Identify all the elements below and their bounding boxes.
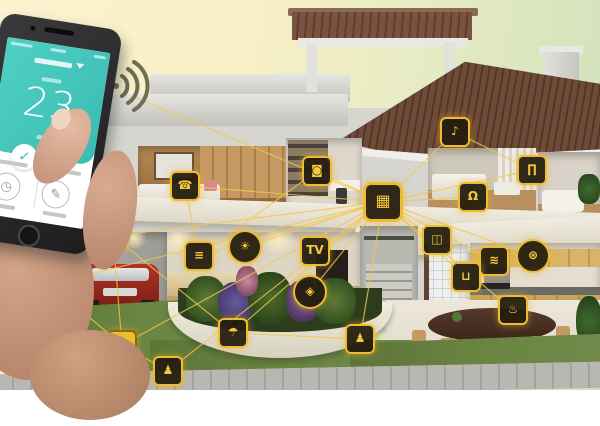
- room-selector-label[interactable]: [34, 57, 72, 68]
- chevron-down-icon[interactable]: [76, 63, 85, 69]
- button-label-bar: [42, 211, 66, 219]
- edit-pencil-icon: ✎: [49, 186, 62, 203]
- table-plant: [452, 312, 462, 322]
- scene-timer-icon: ◷: [0, 178, 13, 195]
- device-hub-icon[interactable]: ▦: [363, 182, 403, 222]
- device-washer-icon[interactable]: ◙: [302, 156, 332, 186]
- cooktop-surface: [480, 283, 510, 289]
- pergola-tile-cap: [292, 12, 472, 40]
- device-presence-icon[interactable]: ♟: [345, 324, 375, 354]
- phone-camera: [30, 25, 36, 31]
- device-blinds-icon[interactable]: ≡: [184, 241, 214, 271]
- device-intercom-icon[interactable]: ☎: [170, 171, 200, 201]
- device-curtain-icon[interactable]: ∏: [517, 155, 547, 185]
- status-time-bar: [50, 48, 66, 53]
- desk-chair: [336, 188, 347, 204]
- device-cooktop-icon[interactable]: ♨: [498, 295, 528, 325]
- device-doorbell-icon[interactable]: ♪: [440, 117, 470, 147]
- scene-timer-button[interactable]: ◷: [0, 171, 22, 203]
- license-plate: [103, 288, 137, 296]
- device-sprinkler-icon[interactable]: ☂: [218, 318, 248, 348]
- potted-plant: [578, 174, 600, 204]
- pink-pillow: [204, 180, 217, 191]
- car-rear-window: [91, 268, 149, 281]
- ceiling-light-glow: [258, 232, 298, 252]
- vanity-desk: [494, 182, 520, 195]
- smart-home-illustration: ▦☎◙≡☀TV♪∏Ω◫⊛≋⊔♨◉↯▤♟☂◈♟: [0, 0, 600, 426]
- device-door-lock-icon[interactable]: Ω: [458, 182, 488, 212]
- device-window-icon[interactable]: ◫: [422, 225, 452, 255]
- status-battery-bar: [94, 55, 106, 60]
- device-tv-icon[interactable]: TV: [300, 236, 330, 266]
- device-faucet-icon[interactable]: ≋: [479, 246, 509, 276]
- stair-railing: [364, 236, 414, 240]
- status-carrier-bar: [11, 42, 33, 48]
- pergola-beam: [298, 38, 468, 47]
- phone-speaker: [44, 27, 74, 37]
- device-light-icon[interactable]: ☀: [228, 230, 262, 264]
- device-motion-sensor-icon[interactable]: ♟: [153, 356, 183, 386]
- lower-fingers: [30, 330, 150, 420]
- device-entry-sensor-icon[interactable]: ◈: [293, 275, 327, 309]
- pink-flowers: [236, 266, 258, 296]
- device-fan-icon[interactable]: ⊛: [516, 239, 550, 273]
- pergola-pillar-left: [306, 44, 317, 92]
- device-bathtub-icon[interactable]: ⊔: [451, 262, 481, 292]
- home-button[interactable]: [16, 223, 41, 248]
- button-label-bar: [0, 202, 15, 210]
